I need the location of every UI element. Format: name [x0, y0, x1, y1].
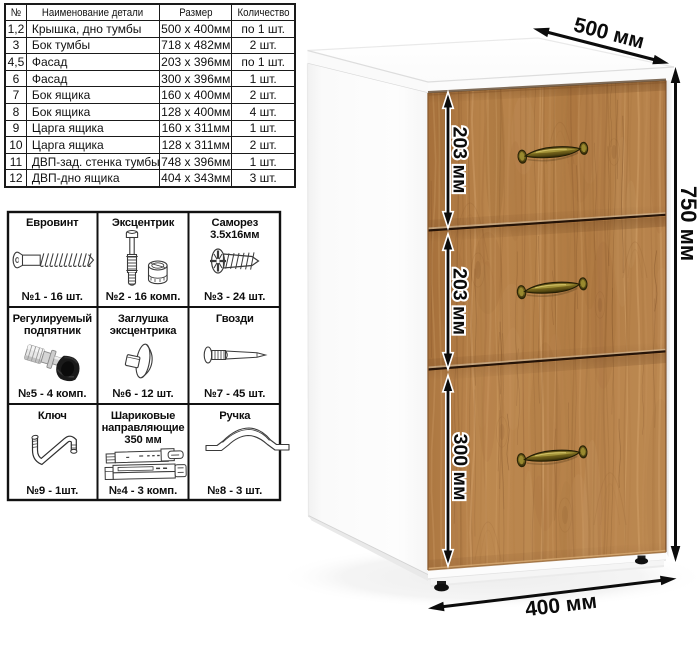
svg-text:203 мм: 203 мм — [449, 268, 471, 335]
svg-text:750 мм: 750 мм — [676, 186, 700, 261]
svg-text:203 мм: 203 мм — [449, 127, 471, 194]
svg-text:300 мм: 300 мм — [449, 434, 471, 501]
